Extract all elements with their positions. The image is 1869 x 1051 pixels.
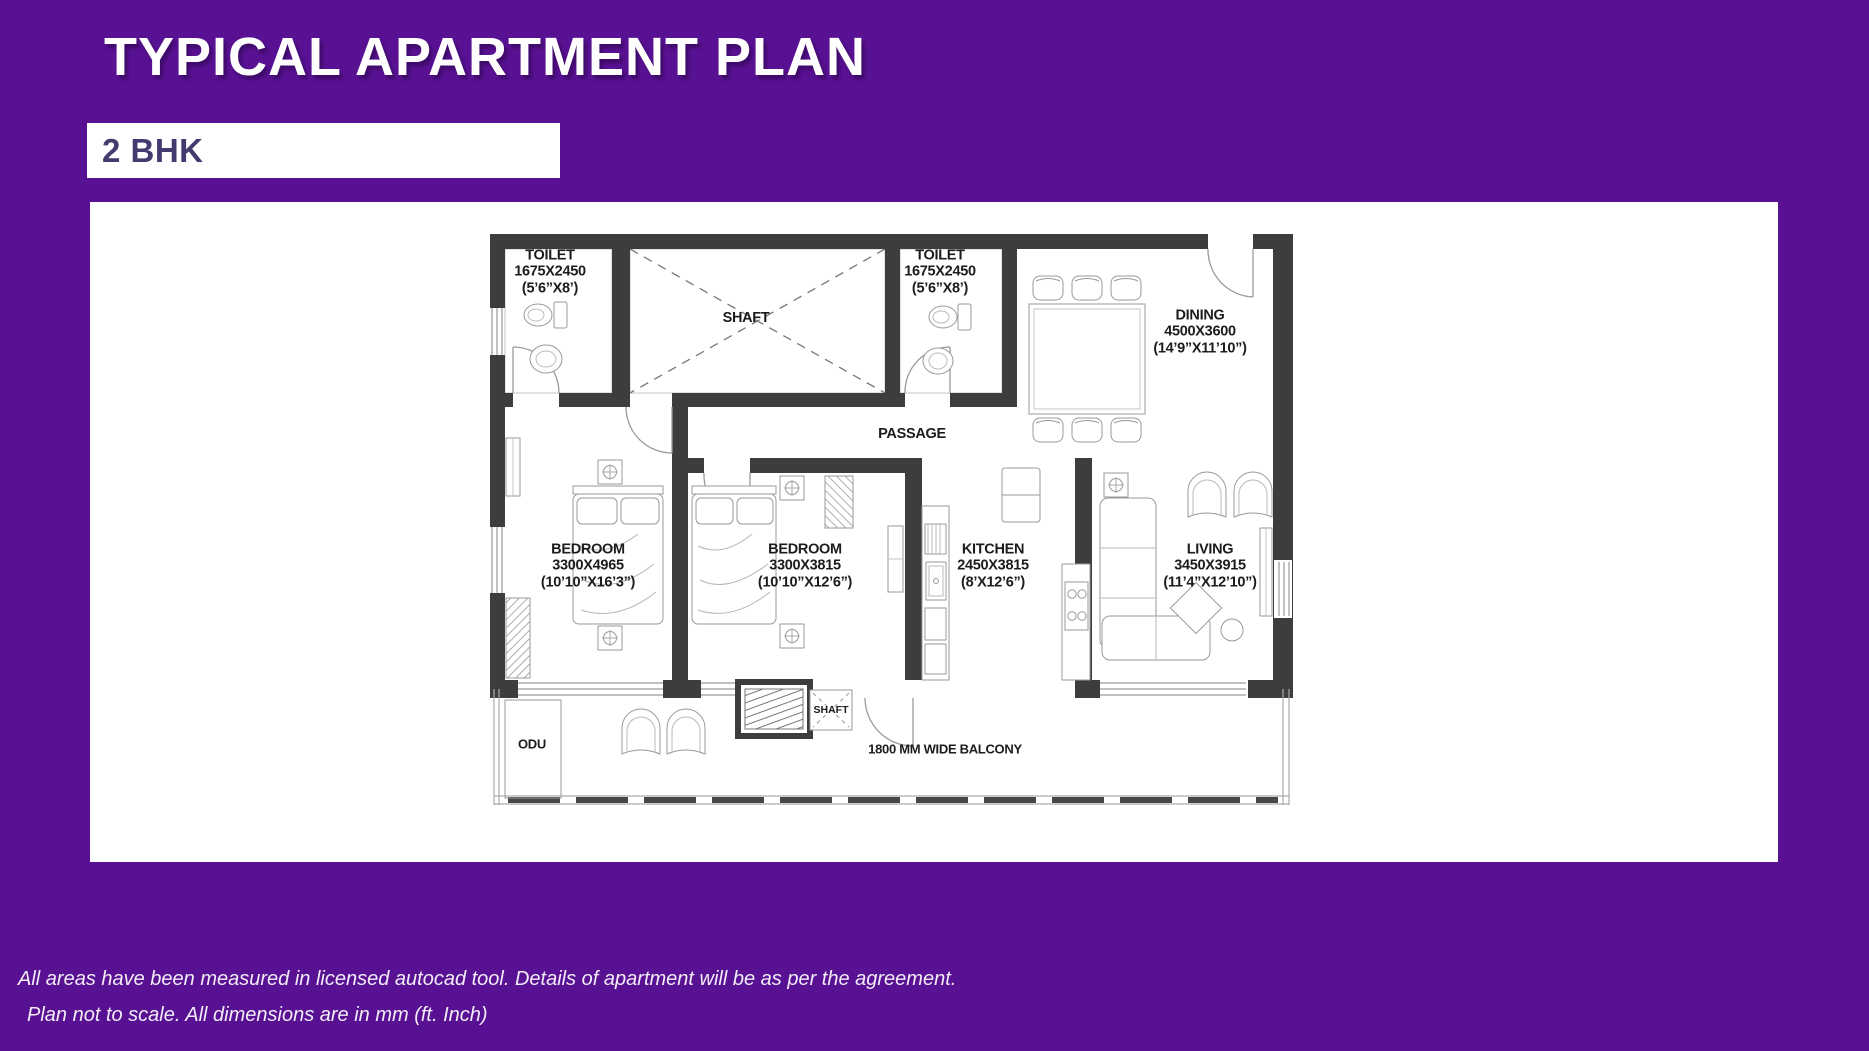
unit-type-label: 2 BHK <box>102 132 204 170</box>
dining-table <box>1029 276 1145 442</box>
room-label-kitchen: KITCHEN2450X3815(8’X12’6”) <box>957 541 1029 590</box>
footnote-scale: Plan not to scale. All dimensions are in… <box>27 1004 488 1027</box>
nightstand-icon <box>598 460 622 484</box>
balcony-chair-icon <box>667 709 705 754</box>
armchair-icon <box>1234 472 1272 517</box>
armchair-icon <box>1188 472 1226 517</box>
room-label-balcony: 1800 MM WIDE BALCONY <box>868 743 1022 758</box>
nightstand-icon <box>598 626 622 650</box>
room-label-toilet-2: TOILET1675X2450(5’6”X8’) <box>904 247 976 296</box>
nightstand-icon <box>780 476 804 500</box>
unit-type-box: 2 BHK <box>87 123 560 178</box>
fridge-icon <box>1002 468 1040 522</box>
wardrobe-2 <box>825 476 853 528</box>
nightstand-icon <box>780 624 804 648</box>
page-title: TYPICAL APARTMENT PLAN <box>104 26 866 88</box>
pouf <box>1221 619 1243 641</box>
dresser-2 <box>888 526 903 592</box>
room-label-odu: ODU <box>518 738 546 753</box>
room-label-living: LIVING3450X3915(11’4”X12’10”) <box>1163 541 1256 590</box>
room-label-bedroom-1: BEDROOM3300X4965(10’10”X16’3”) <box>541 541 635 590</box>
balcony-vent <box>738 682 810 736</box>
room-label-bedroom-2: BEDROOM3300X3815(10’10”X12’6”) <box>758 541 852 590</box>
balcony-chair-icon <box>622 709 660 754</box>
side-table-icon <box>1104 473 1128 497</box>
footnote-measurement: All areas have been measured in licensed… <box>18 968 956 991</box>
dresser-1 <box>506 438 520 496</box>
room-label-dining: DINING4500X3600(14’9”X11’10”) <box>1153 307 1246 356</box>
tv-unit <box>1260 528 1272 616</box>
toilet-1-fixtures <box>524 302 567 373</box>
kitchen-counters <box>922 506 1090 680</box>
wardrobe-1 <box>506 598 530 678</box>
room-label-toilet-1: TOILET1675X2450(5’6”X8’) <box>514 247 586 296</box>
room-label-passage: PASSAGE <box>878 426 946 442</box>
floor-plan: TOILET1675X2450(5’6”X8’) SHAFT TOILET167… <box>488 230 1316 812</box>
room-label-shaft-top: SHAFT <box>723 310 770 326</box>
room-label-shaft-balcony: SHAFT <box>814 705 849 717</box>
toilet-2-fixtures <box>923 304 971 374</box>
